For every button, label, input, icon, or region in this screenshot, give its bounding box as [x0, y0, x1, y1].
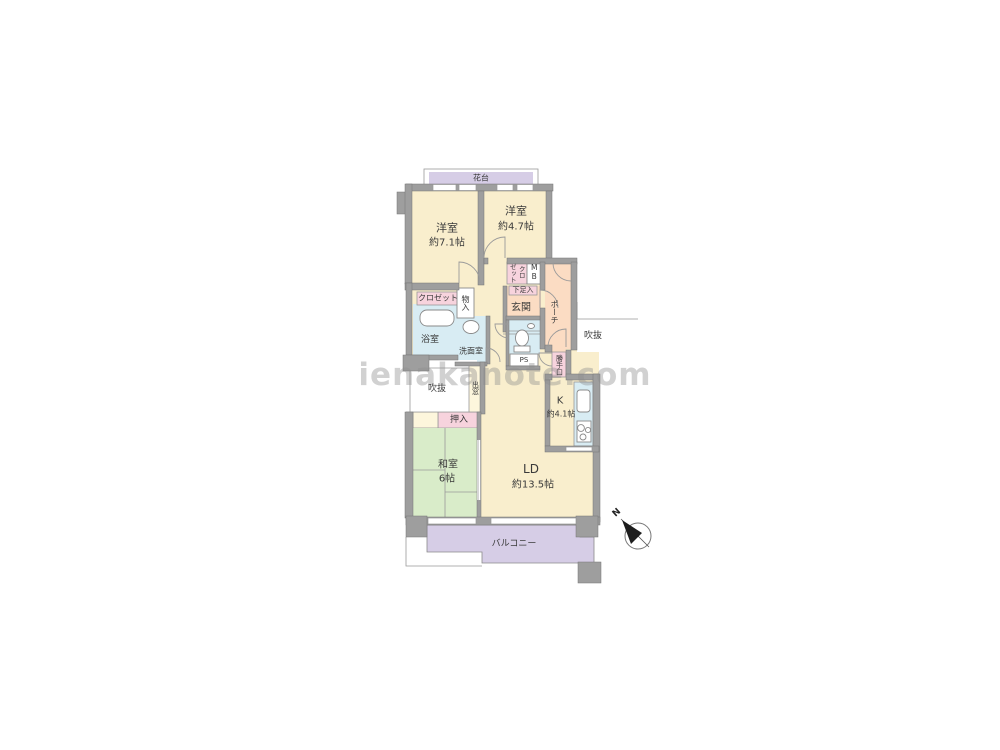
washbasin: [463, 321, 479, 334]
void-right-outline: [577, 302, 638, 319]
label-shoe-cabinet: 下足入: [513, 286, 534, 294]
floorplan-canvas: ienakanote.com N 花台 洋室 約7.1帖 洋室 約4.7帖 クロ…: [0, 0, 1000, 750]
label-japanese-name: 和室: [438, 459, 458, 471]
label-void-right: 吹抜: [584, 331, 602, 341]
label-bay-window: 出窓: [472, 381, 479, 395]
tokonoma: [413, 412, 438, 428]
compass: [621, 519, 651, 549]
watermark: ienakanote.com: [358, 357, 651, 393]
label-storage: 物入: [461, 295, 469, 311]
label-void-left: 吹抜: [428, 384, 446, 394]
label-back-door: 勝手口: [556, 355, 563, 376]
label-kitchen-size: 約4.1帖: [547, 409, 576, 418]
toilet-tank: [514, 346, 530, 352]
label-western2-name: 洋室: [505, 206, 527, 219]
label-bathroom: 浴室: [421, 335, 439, 345]
label-balcony: バルコニー: [492, 539, 537, 549]
label-closet-col-left: ゼット: [509, 263, 516, 283]
label-western2-size: 約4.7帖: [498, 221, 534, 233]
label-entrance: 玄関: [511, 302, 531, 314]
label-kitchen-name: K: [557, 395, 564, 407]
label-japanese-size: 6帖: [439, 473, 455, 485]
label-western1-name: 洋室: [436, 223, 458, 236]
label-pipe-space: PS: [520, 356, 529, 364]
label-closet: クロゼット: [418, 293, 458, 302]
bathtub: [420, 310, 454, 326]
label-living-size: 約13.5帖: [512, 479, 554, 491]
label-futon-closet: 押入: [450, 415, 468, 425]
toilet-bowl: [516, 330, 529, 346]
label-closet-col-right: クロ: [518, 266, 525, 279]
label-washroom: 洗面室: [459, 346, 483, 355]
kitchen-sink: [577, 390, 590, 412]
label-living-name: LD: [523, 463, 539, 477]
label-porch: ポーチ: [550, 300, 558, 324]
label-meter-box: MB: [530, 263, 538, 281]
toilet-sink: [528, 324, 535, 329]
label-flower-stand: 花台: [473, 173, 489, 182]
label-western1-size: 約7.1帖: [429, 237, 465, 249]
